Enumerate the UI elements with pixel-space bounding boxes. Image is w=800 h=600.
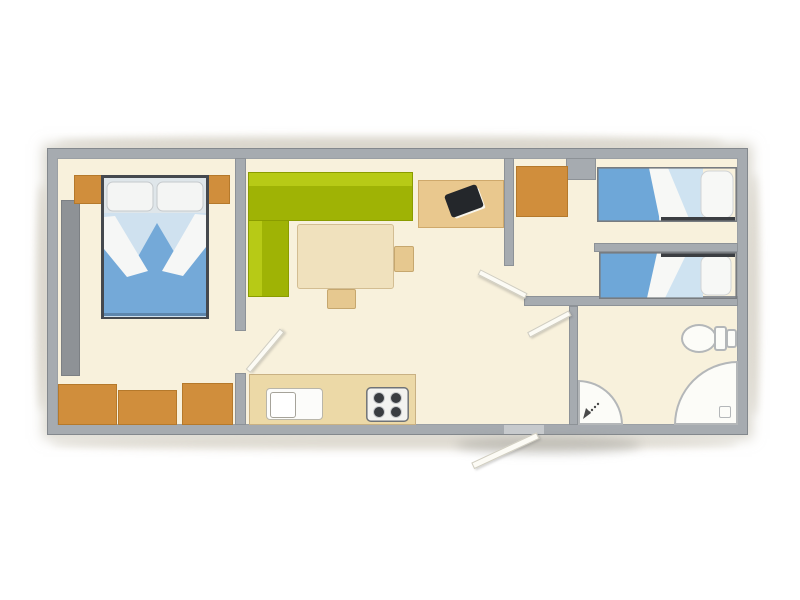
wall-between-single-beds — [594, 243, 738, 252]
cabinet-2 — [118, 390, 177, 425]
entrance-shadow — [456, 436, 641, 454]
double-bed — [101, 175, 209, 319]
smudge-top — [58, 136, 723, 149]
single-bed-top — [597, 167, 737, 222]
wall-master-living-lower — [235, 373, 246, 425]
shower-drain — [719, 406, 731, 418]
toilet-bowl — [681, 324, 717, 353]
stove — [366, 387, 409, 422]
sofa-backrest-top — [249, 173, 412, 186]
wardrobe-bedroom2 — [516, 166, 568, 217]
master-bedroom-door-opening — [235, 331, 246, 373]
floor-plan — [48, 149, 747, 434]
shower-head-icon — [582, 400, 602, 420]
cabinet-3 — [182, 383, 233, 425]
nightstand-right — [206, 175, 230, 204]
wall-living-bedroom2 — [504, 158, 514, 266]
single-bed-top-graphic — [597, 167, 737, 222]
shower-head-icon-graphic — [582, 400, 602, 420]
dining-table — [297, 224, 394, 289]
wall-hall-bathroom — [569, 306, 578, 425]
double-bed-graphic — [101, 175, 209, 319]
wall-master-living-upper — [235, 158, 246, 331]
entrance-threshold — [504, 425, 544, 434]
nightstand-left — [74, 175, 102, 204]
smudge-left — [36, 185, 47, 410]
kitchen-sink — [266, 388, 323, 420]
single-bed-bottom-graphic — [599, 252, 737, 299]
cabinet-1 — [58, 384, 117, 425]
toilet-tank-2 — [726, 329, 737, 348]
sink-basin — [270, 392, 296, 418]
smudge-right — [749, 175, 760, 415]
single-bed-bottom — [599, 252, 737, 299]
stool-right — [394, 246, 414, 272]
wall-stub-bedroom2 — [566, 158, 596, 180]
gray-wardrobe — [61, 200, 80, 376]
stool-bottom — [327, 289, 356, 309]
corner-sofa-horizontal — [248, 172, 413, 221]
page: { "title": "Mobile home floor plan - 2 b… — [0, 0, 800, 600]
stove-graphic — [366, 387, 409, 422]
